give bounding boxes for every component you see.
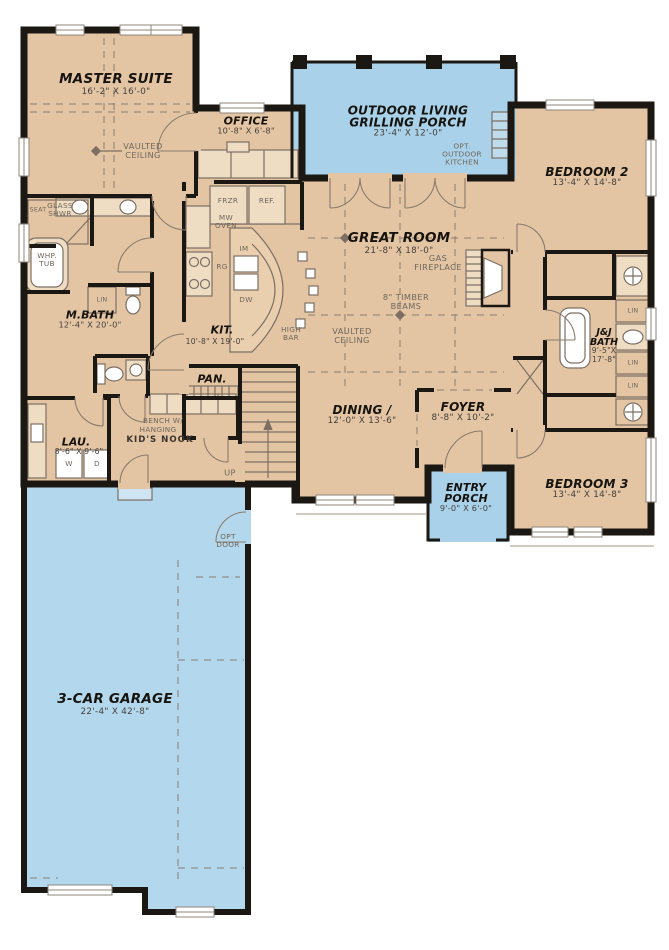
window [220,103,264,113]
jj-vanity-sink [616,324,650,350]
window [19,224,29,262]
outdoor-porch-floor [292,62,516,178]
window [356,495,394,505]
powder-sink [126,360,146,380]
floor-plan-drawing [0,0,669,950]
entry-porch-floor [428,470,508,542]
laundry-counter [28,404,46,478]
floor-plan-page: MASTER SUITE16'-2" X 16'-0" VAULTEDCEILI… [0,0,669,950]
window [316,495,354,505]
window [56,25,84,35]
window [646,438,656,502]
mw-oven-box [186,206,210,248]
garage-door [48,885,112,895]
garage-step [118,488,152,500]
window [574,527,602,537]
floor-fills [24,30,651,912]
window [19,138,29,176]
washer-box [56,450,82,478]
window [646,140,656,196]
jj-vanity-top [616,256,650,296]
garage-floor [24,484,248,912]
mbath-toilet [126,287,140,314]
master-vanity [56,198,152,216]
freezer-box [210,186,247,224]
window [120,25,182,35]
fridge-box [249,186,285,224]
dryer-box [84,450,110,478]
window [532,527,568,537]
window [646,308,656,340]
fireplace [466,250,509,306]
range-box [186,252,212,296]
window [546,100,594,110]
garage-door [176,907,214,917]
